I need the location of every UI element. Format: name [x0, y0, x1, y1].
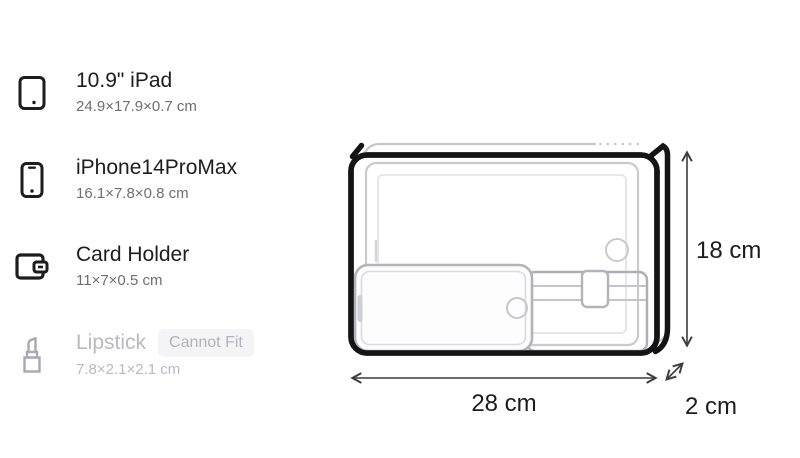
iphone-in-bag: [355, 265, 532, 351]
width-dimension-label: 28 cm: [471, 390, 536, 417]
item-title: Card Holder: [76, 242, 189, 268]
ipad-icon: [12, 75, 52, 111]
item-title: Lipstick: [76, 330, 146, 356]
bag-fit-diagram: 28 cm 18 cm 2 cm: [330, 128, 800, 453]
item-title: 10.9" iPad: [76, 68, 172, 94]
wallet-icon: [12, 251, 52, 283]
item-title: iPhone14ProMax: [76, 155, 237, 181]
list-item-card-holder[interactable]: Card Holder 11×7×0.5 cm: [12, 242, 332, 291]
item-dimensions: 16.1×7.8×0.8 cm: [76, 184, 237, 204]
item-dimensions: 11×7×0.5 cm: [76, 271, 189, 291]
bag-diagram-svg: 28 cm 18 cm 2 cm: [330, 128, 800, 453]
height-dimension-label: 18 cm: [696, 237, 761, 264]
depth-dimension-label: 2 cm: [685, 393, 737, 420]
list-item-iphone[interactable]: iPhone14ProMax 16.1×7.8×0.8 cm: [12, 155, 332, 204]
lipstick-icon: [12, 335, 52, 375]
packed-items-list: 10.9" iPad 24.9×17.9×0.7 cm iPhone14ProM…: [12, 68, 332, 418]
cannot-fit-badge: Cannot Fit: [158, 329, 254, 357]
item-dimensions: 7.8×2.1×2.1 cm: [76, 360, 254, 380]
item-dimensions: 24.9×17.9×0.7 cm: [76, 97, 197, 117]
list-item-lipstick[interactable]: Lipstick Cannot Fit 7.8×2.1×2.1 cm: [12, 329, 332, 380]
depth-arrow: [667, 364, 682, 379]
iphone-icon: [12, 161, 52, 199]
list-item-ipad[interactable]: 10.9" iPad 24.9×17.9×0.7 cm: [12, 68, 332, 117]
